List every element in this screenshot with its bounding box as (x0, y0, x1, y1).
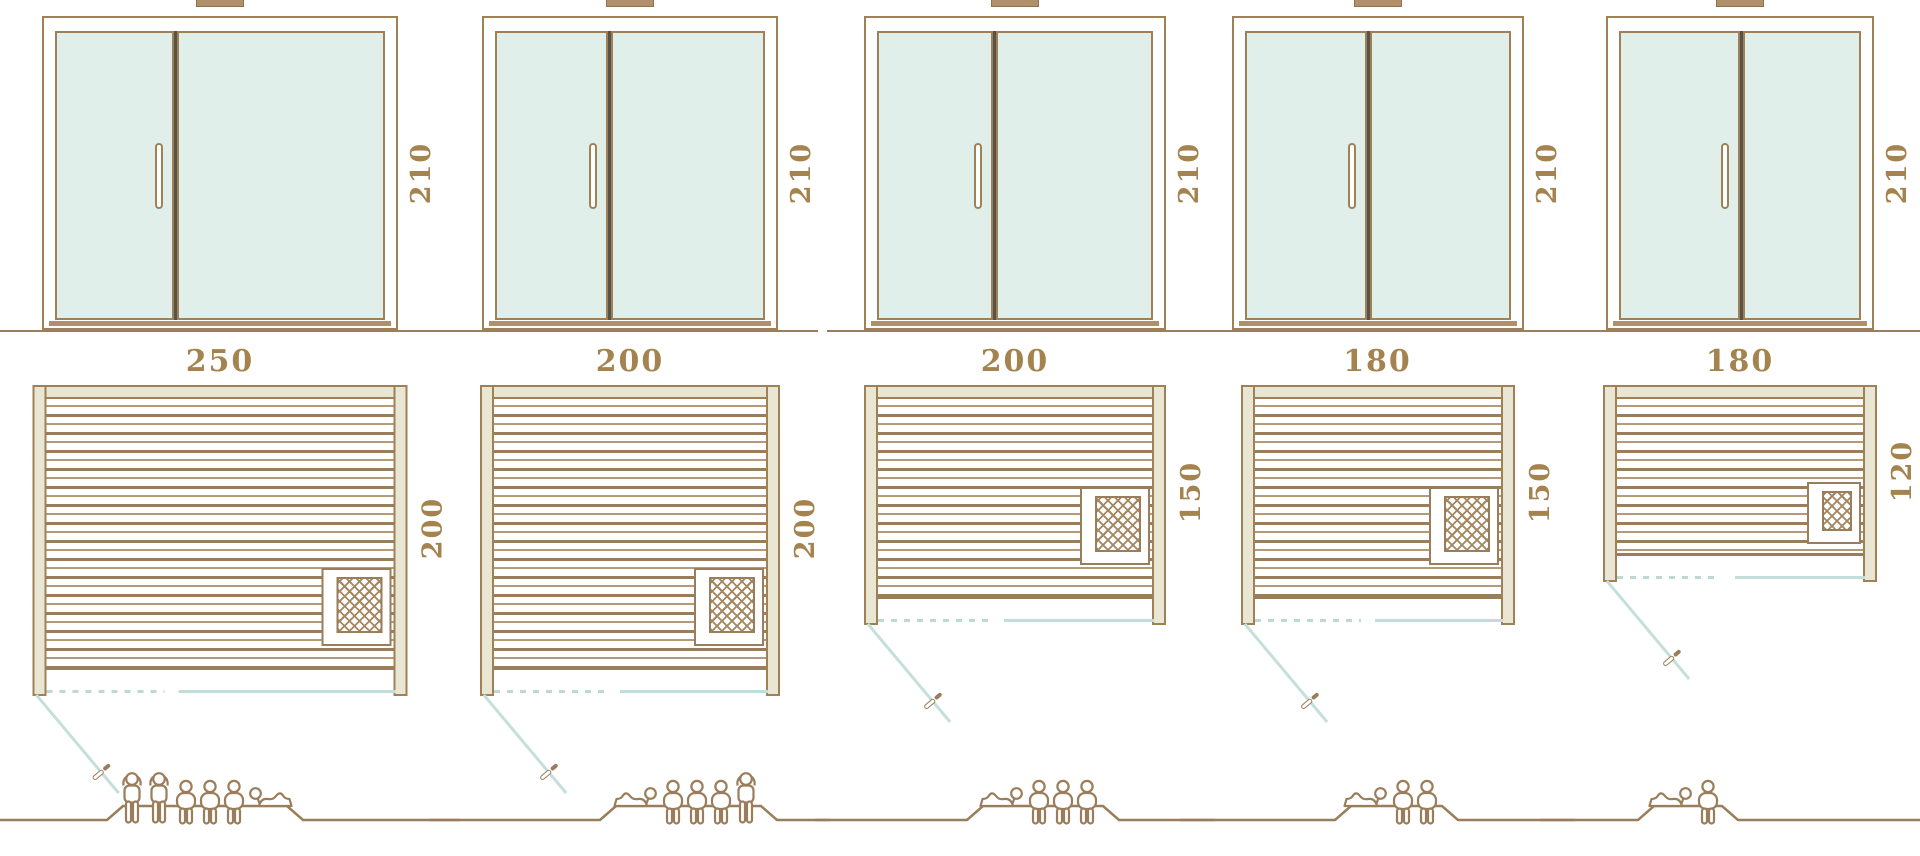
person-standing-icon (150, 773, 167, 822)
person-sitting-icon (225, 781, 243, 824)
roof-vent-icon (1354, 0, 1402, 7)
plan-width-label: 180 (1570, 344, 1910, 379)
wall-right (1152, 385, 1166, 625)
wall-right (394, 385, 408, 696)
door-opening-line (878, 619, 990, 622)
glass-front-line (1735, 576, 1865, 579)
glass-fixed-panel (996, 31, 1153, 320)
glass-front (495, 31, 765, 320)
glass-door-panel (495, 31, 608, 320)
capacity-figures (10, 756, 430, 848)
door-sill (1239, 321, 1517, 326)
person-sitting-icon (1394, 781, 1412, 824)
person-lying-icon (1345, 788, 1386, 806)
person-lying-icon (1650, 788, 1691, 806)
stove-icon (1444, 496, 1490, 552)
plan-depth-label: 200 (790, 496, 821, 558)
sauna-column-250x200: 210 250 200 (10, 0, 430, 856)
sauna-column-180x120: 210 180 120 (1570, 0, 1910, 856)
roof-vent-icon (991, 0, 1039, 7)
sauna-column-180x150: 210 180 150 (1210, 0, 1545, 856)
plan-depth-label: 200 (418, 496, 449, 558)
glass-door-panel (1619, 31, 1740, 320)
capacity-figures (1210, 756, 1545, 848)
person-lying-icon (615, 788, 656, 806)
person-sitting-icon (1078, 781, 1096, 824)
people-baseline (1540, 806, 1920, 820)
stove-icon (1822, 491, 1852, 531)
plan-depth-label: 120 (1887, 439, 1918, 501)
person-lying-icon (981, 788, 1022, 806)
door-sill (871, 321, 1159, 326)
stove-guard (1429, 487, 1499, 565)
door-sill (49, 321, 391, 326)
roof-vent-icon (1716, 0, 1764, 7)
people-baseline (815, 806, 1215, 820)
door-sill (489, 321, 771, 326)
stove-icon (709, 577, 755, 633)
person-sitting-icon (1418, 781, 1436, 824)
stove-guard (1807, 482, 1861, 544)
door-height-label: 210 (406, 142, 437, 204)
door-leaf-icon (1299, 692, 1319, 710)
door-elevation: 210 (42, 16, 398, 330)
capacity-figures (1570, 756, 1910, 848)
door-handle-icon (1348, 143, 1356, 209)
ground-line (1552, 330, 1920, 332)
people-baseline (430, 806, 830, 820)
person-lying-icon (250, 788, 291, 806)
door-handle-icon (589, 143, 597, 209)
ground-line (1192, 330, 1563, 332)
wall-right (1501, 385, 1515, 625)
door-sill (1613, 321, 1867, 326)
plan-width-label: 250 (10, 344, 430, 379)
person-sitting-icon (177, 781, 195, 824)
ground-line (827, 330, 1203, 332)
person-standing-icon (737, 773, 754, 822)
glass-door-panel (1245, 31, 1367, 320)
person-sitting-icon (712, 781, 730, 824)
ground-line (0, 330, 448, 332)
plan-width-label: 200 (845, 344, 1185, 379)
door-swing-line (867, 623, 951, 723)
door-elevation: 210 (864, 16, 1166, 330)
door-handle-icon (1721, 143, 1729, 209)
glass-front (1245, 31, 1511, 320)
plan-width-label: 200 (460, 344, 800, 379)
capacity-figures (460, 756, 800, 848)
plan-depth-label: 150 (1176, 461, 1207, 523)
glass-front (1619, 31, 1861, 320)
person-standing-icon (123, 773, 140, 822)
roof-vent-icon (606, 0, 654, 7)
stove-icon (337, 577, 383, 633)
door-opening-line (47, 690, 165, 693)
door-elevation: 210 (482, 16, 778, 330)
ground-line (442, 330, 818, 332)
stove-icon (1095, 496, 1141, 552)
stove-guard (1080, 487, 1150, 565)
roof-vent-icon (196, 0, 244, 7)
person-sitting-icon (664, 781, 682, 824)
glass-front-line (620, 690, 768, 693)
wall-top (480, 385, 780, 399)
glass-front (55, 31, 385, 320)
wall-top (1603, 385, 1877, 399)
floor-plan: 200 (33, 385, 408, 670)
sauna-column-200x150: 210 200 150 (845, 0, 1185, 856)
wall-left (864, 385, 878, 625)
door-opening-line (494, 690, 606, 693)
wall-right (766, 385, 780, 696)
wall-left (1603, 385, 1617, 582)
glass-front-line (1375, 619, 1503, 622)
sauna-column-200x200: 210 200 200 (460, 0, 800, 856)
glass-door-panel (877, 31, 993, 320)
wall-top (864, 385, 1166, 399)
door-height-label: 210 (1532, 142, 1563, 204)
door-leaf-icon (1662, 649, 1682, 667)
floor-plan: 150 (1241, 385, 1515, 599)
door-swing-line (1244, 623, 1328, 723)
floor-plan: 200 (480, 385, 780, 670)
door-opening-line (1617, 576, 1721, 579)
glass-fixed-panel (1743, 31, 1861, 320)
door-height-label: 210 (1174, 142, 1205, 204)
sauna-size-diagram: 210 250 200 (0, 0, 1920, 856)
stove-guard (322, 568, 392, 646)
plan-depth-label: 150 (1525, 461, 1556, 523)
people-baseline (1180, 806, 1575, 820)
stove-guard (694, 568, 764, 646)
door-elevation: 210 (1232, 16, 1524, 330)
glass-door-panel (55, 31, 174, 320)
person-sitting-icon (201, 781, 219, 824)
capacity-figures (845, 756, 1185, 848)
glass-front (877, 31, 1153, 320)
person-sitting-icon (1699, 781, 1717, 824)
door-elevation: 210 (1606, 16, 1874, 330)
glass-fixed-panel (1370, 31, 1511, 320)
glass-front-line (1004, 619, 1154, 622)
floor-plan: 120 (1603, 385, 1877, 556)
door-handle-icon (155, 143, 163, 209)
wall-left (480, 385, 494, 696)
glass-front-line (179, 690, 396, 693)
glass-fixed-panel (611, 31, 765, 320)
plan-width-label: 180 (1210, 344, 1545, 379)
door-height-label: 210 (786, 142, 817, 204)
door-opening-line (1255, 619, 1361, 622)
wall-right (1863, 385, 1877, 582)
floor-plan: 150 (864, 385, 1166, 599)
door-height-label: 210 (1882, 142, 1913, 204)
door-handle-icon (974, 143, 982, 209)
door-swing-line (1606, 580, 1690, 680)
person-sitting-icon (1030, 781, 1048, 824)
glass-fixed-panel (177, 31, 385, 320)
person-sitting-icon (1054, 781, 1072, 824)
person-sitting-icon (688, 781, 706, 824)
door-leaf-icon (923, 692, 943, 710)
wall-left (1241, 385, 1255, 625)
wall-top (33, 385, 408, 399)
wall-top (1241, 385, 1515, 399)
wall-left (33, 385, 47, 696)
